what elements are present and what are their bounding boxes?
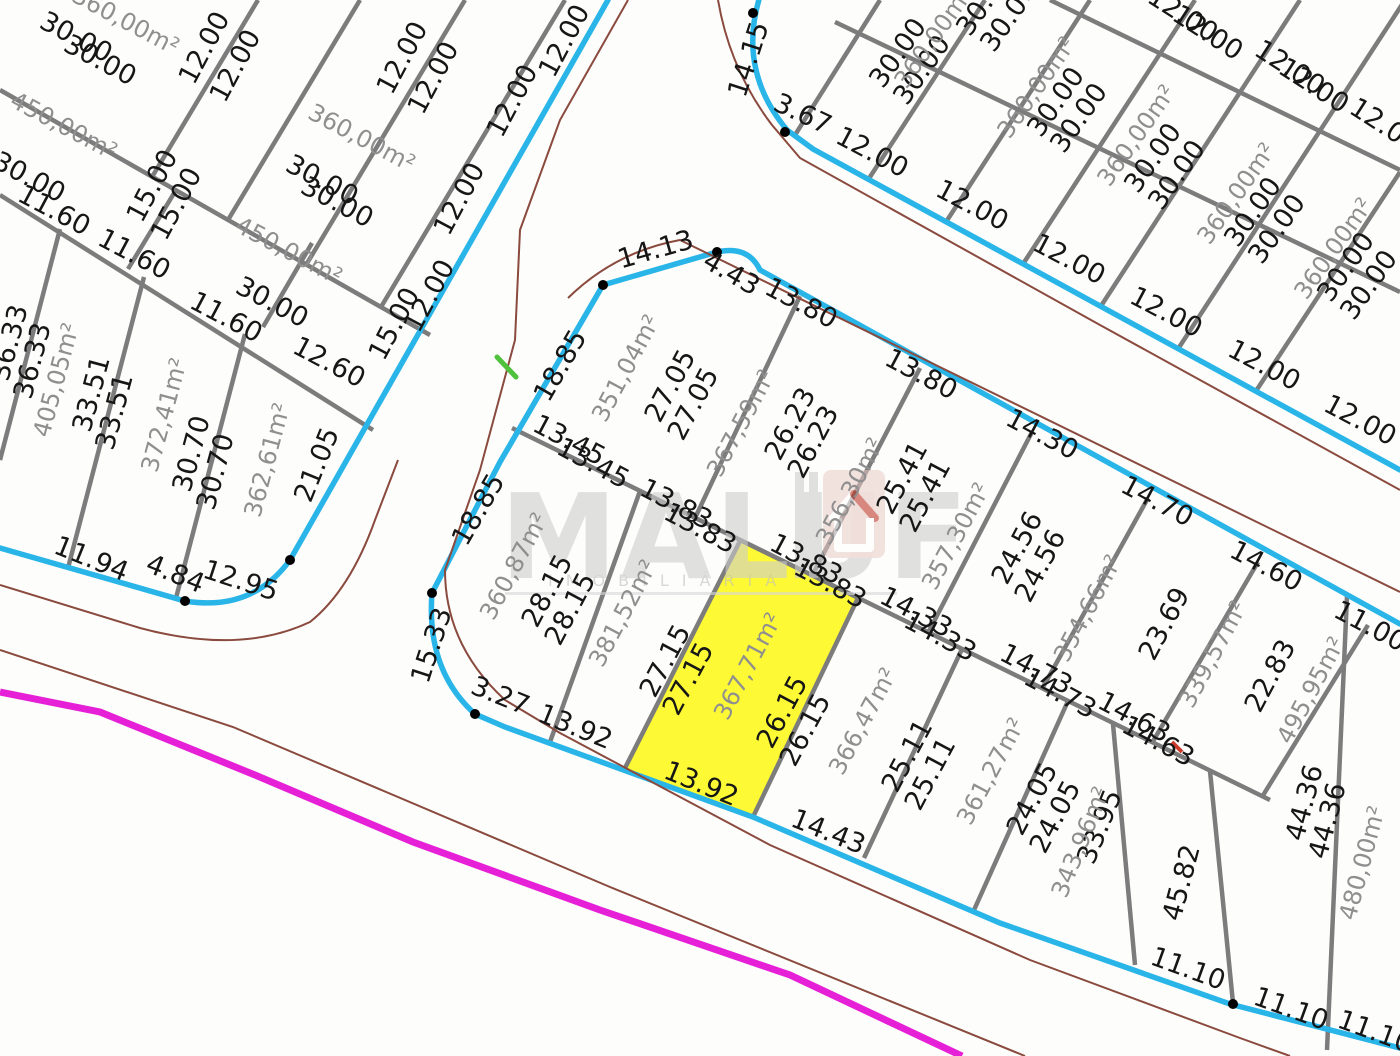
subdivision-plat: MALUF IMOBILIÁRIA 360,00m²30.0030.0012.0… [0,0,1400,1056]
vertex-dot [470,709,480,719]
vertex-dot [748,8,758,18]
vertex-dot [285,555,295,565]
vertex-dot [427,588,437,598]
vertex-dot [1228,999,1238,1009]
vertex-dot [598,280,608,290]
plat-map-canvas: MALUF IMOBILIÁRIA 360,00m²30.0030.0012.0… [0,0,1400,1056]
vertex-dot [180,596,190,606]
vertex-dot [780,127,790,137]
